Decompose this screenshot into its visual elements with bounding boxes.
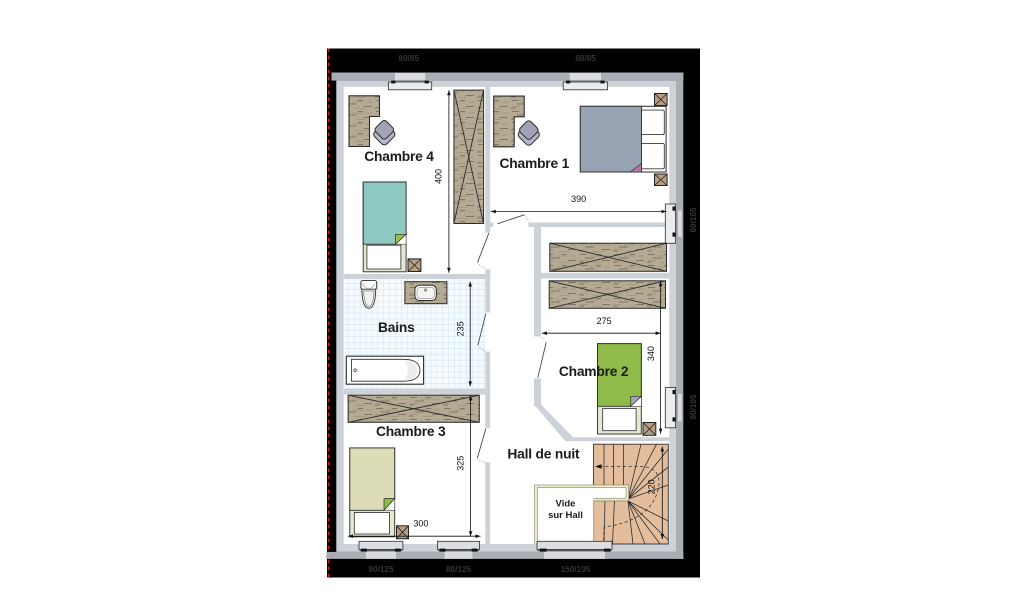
svg-text:80/85: 80/85 (575, 54, 596, 63)
svg-text:80/85: 80/85 (399, 54, 420, 63)
svg-text:80/105: 80/105 (689, 207, 698, 232)
svg-text:300: 300 (413, 519, 428, 529)
svg-text:Chambre 1: Chambre 1 (500, 156, 570, 171)
svg-text:80/125: 80/125 (368, 565, 393, 574)
svg-text:Chambre 4: Chambre 4 (364, 149, 434, 164)
svg-text:275: 275 (597, 316, 612, 326)
svg-text:340: 340 (646, 346, 656, 361)
svg-text:Chambre 2: Chambre 2 (559, 364, 629, 379)
svg-text:sur Hall: sur Hall (548, 510, 583, 521)
svg-text:400: 400 (434, 169, 444, 184)
svg-text:325: 325 (455, 456, 465, 471)
svg-text:80/125: 80/125 (446, 565, 471, 574)
svg-text:Chambre 3: Chambre 3 (376, 424, 446, 439)
svg-text:Vide: Vide (556, 499, 576, 510)
svg-text:220: 220 (647, 479, 657, 494)
svg-text:150/195: 150/195 (561, 565, 591, 574)
svg-text:80/105: 80/105 (689, 394, 698, 419)
svg-text:235: 235 (456, 321, 466, 336)
svg-text:390: 390 (571, 194, 586, 204)
svg-text:Hall de nuit: Hall de nuit (507, 447, 580, 462)
svg-text:Bains: Bains (378, 320, 415, 335)
